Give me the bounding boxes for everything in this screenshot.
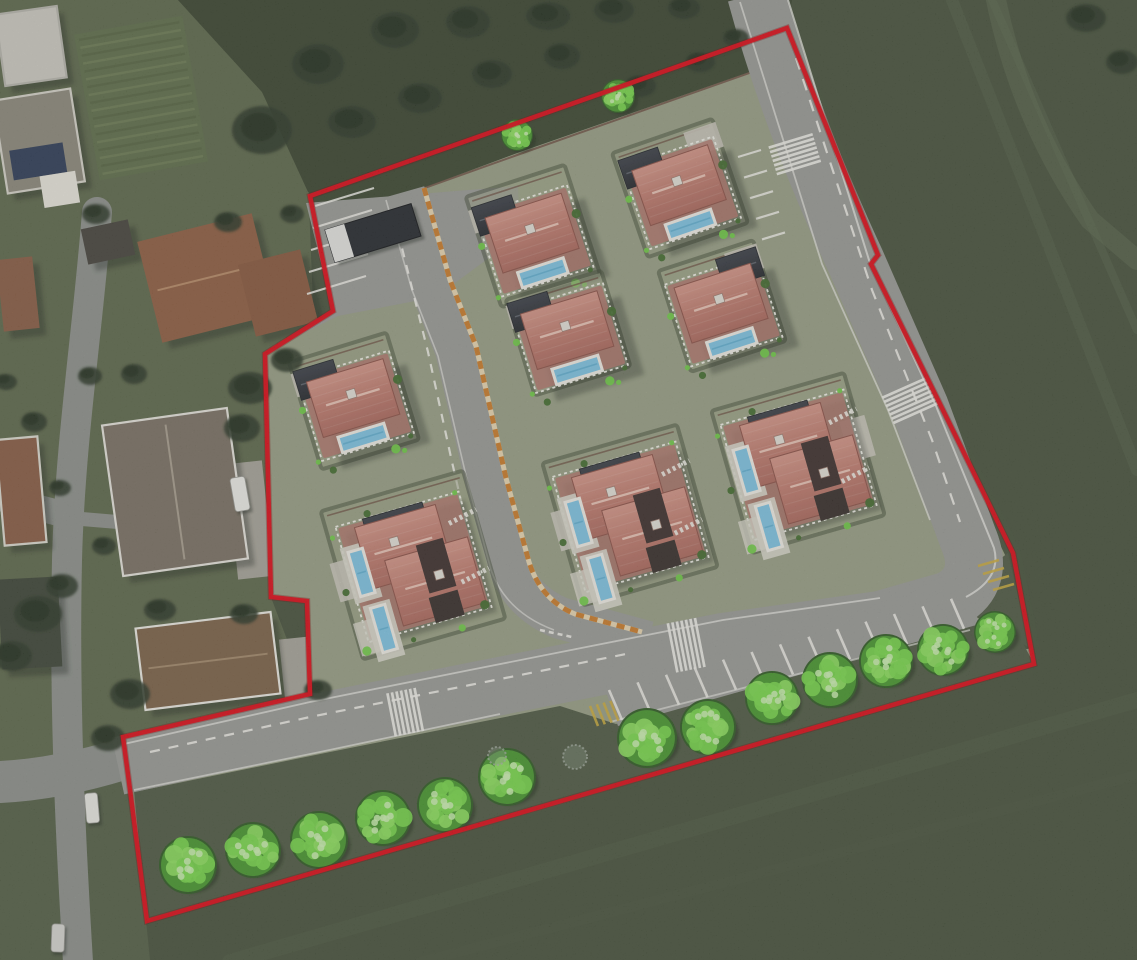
- grain-layer: [0, 0, 1137, 960]
- photo-grain-light: [0, 0, 1137, 960]
- site-plan-canvas: [0, 0, 1137, 960]
- aerial-photo: [0, 0, 1137, 960]
